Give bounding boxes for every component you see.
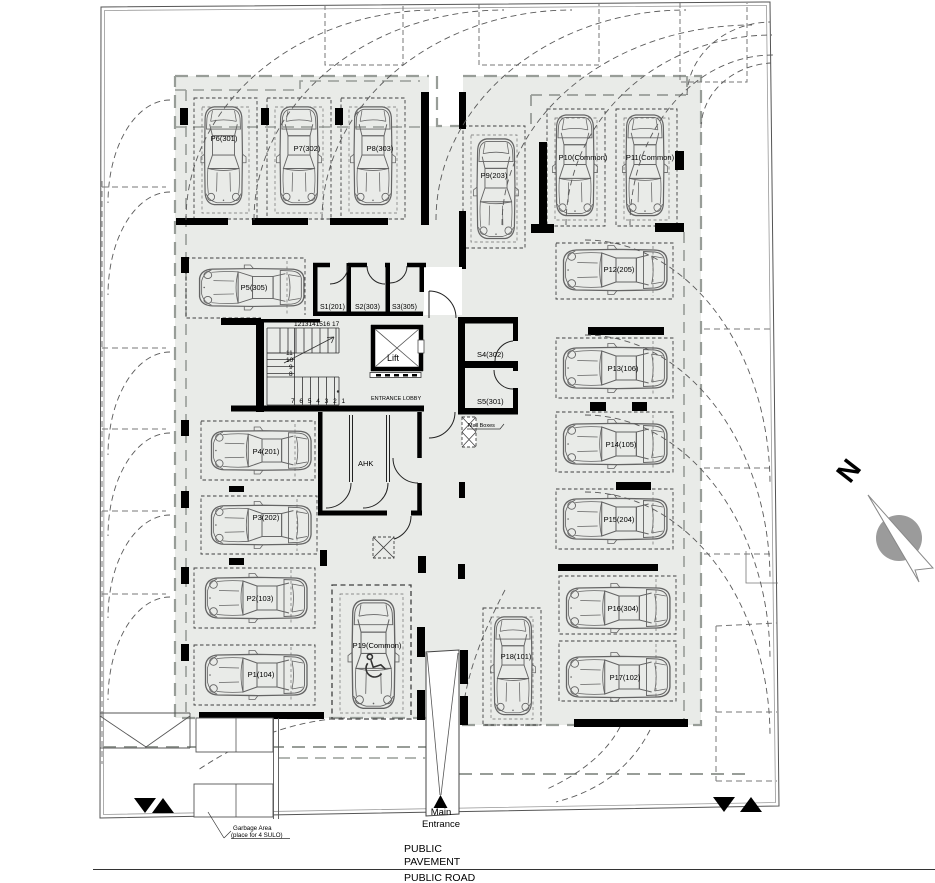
svg-text:1213141516 17: 1213141516 17 (294, 321, 340, 328)
svg-text:PAVEMENT: PAVEMENT (404, 856, 461, 868)
svg-text:8: 8 (289, 371, 293, 378)
svg-text:Main: Main (431, 807, 452, 818)
svg-text:S2(303): S2(303) (355, 304, 380, 311)
svg-text:P11(Common): P11(Common) (626, 153, 675, 162)
svg-text:S5(301): S5(301) (477, 397, 504, 406)
svg-text:PUBLIC: PUBLIC (404, 843, 442, 855)
svg-text:AHK: AHK (358, 459, 373, 468)
svg-text:P15(204): P15(204) (604, 515, 635, 524)
svg-text:P2(103): P2(103) (247, 594, 274, 603)
svg-text:(place for 4 SULO): (place for 4 SULO) (231, 832, 283, 839)
svg-text:Entrance: Entrance (422, 819, 460, 830)
svg-text:S4(302): S4(302) (477, 350, 504, 359)
svg-text:ENTRANCE LOBBY: ENTRANCE LOBBY (371, 396, 421, 402)
svg-text:Mail Boxes: Mail Boxes (468, 423, 495, 429)
svg-text:P6(301): P6(301) (211, 134, 238, 143)
svg-text:P7(302): P7(302) (294, 144, 321, 153)
svg-text:PUBLIC ROAD: PUBLIC ROAD (404, 872, 476, 883)
svg-text:P19(Common): P19(Common) (353, 641, 402, 650)
svg-text:P1(104): P1(104) (248, 670, 275, 679)
svg-text:11: 11 (286, 350, 293, 357)
svg-text:P3(202): P3(202) (253, 513, 280, 522)
svg-text:P10(Common): P10(Common) (559, 153, 608, 162)
svg-text:P17(102): P17(102) (610, 673, 641, 682)
svg-text:9: 9 (289, 364, 293, 371)
svg-text:P18(101): P18(101) (501, 652, 532, 661)
svg-text:P4(201): P4(201) (253, 447, 280, 456)
svg-text:S3(305): S3(305) (392, 304, 417, 311)
svg-text:S1(201): S1(201) (320, 304, 345, 311)
svg-text:P8(303): P8(303) (367, 144, 394, 153)
svg-text:7 6 5 4 3 2 1: 7 6 5 4 3 2 1 (291, 398, 347, 405)
svg-text:P16(304): P16(304) (608, 604, 639, 613)
svg-text:Lift: Lift (387, 353, 400, 363)
svg-text:P13(106): P13(106) (608, 364, 639, 373)
svg-text:10: 10 (286, 357, 294, 364)
svg-text:P14(105): P14(105) (606, 440, 637, 449)
svg-text:P9(203): P9(203) (481, 171, 508, 180)
svg-text:P12(205): P12(205) (604, 265, 635, 274)
svg-text:P5(305): P5(305) (241, 283, 268, 292)
svg-text:Garbage Area: Garbage Area (233, 825, 272, 832)
